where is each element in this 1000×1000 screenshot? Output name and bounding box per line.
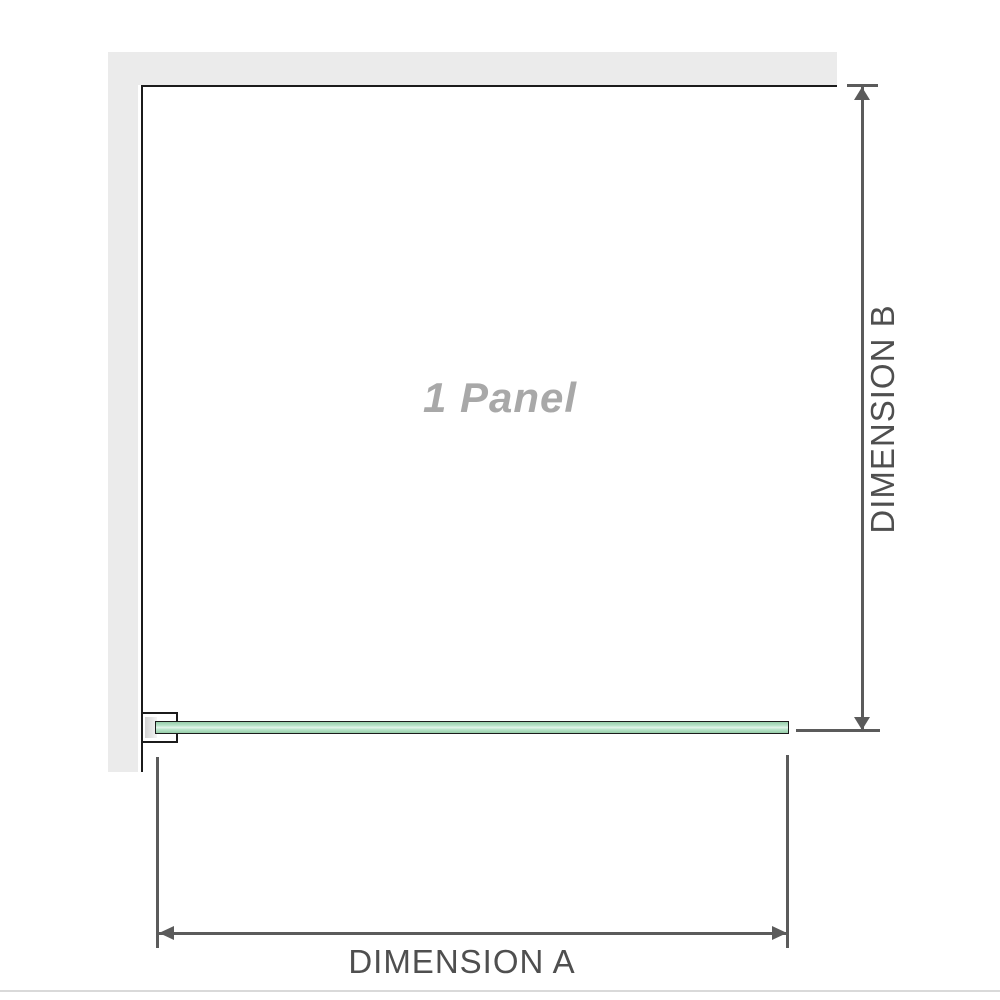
panel-outline-top (141, 85, 837, 87)
arrow-right-icon (772, 926, 787, 940)
arrow-left-icon (159, 926, 174, 940)
dimension-a-extension-right (786, 755, 789, 948)
bottom-separator (0, 990, 1000, 992)
dimension-a-line (159, 932, 788, 935)
wall-top (108, 52, 837, 85)
wall-left (108, 52, 138, 772)
dimension-b-tick-bottom (796, 729, 880, 732)
panel-dimension-diagram: 1 Panel DIMENSION B DIMENSION A (0, 0, 1000, 1000)
dimension-a-extension-left (156, 757, 159, 948)
arrow-up-icon (854, 87, 870, 100)
panel-label: 1 Panel (350, 374, 650, 422)
dimension-a-label: DIMENSION A (162, 945, 762, 979)
dimension-b-label: DIMENSION B (866, 249, 900, 589)
panel-outline-left (141, 85, 143, 772)
glass-panel (155, 721, 789, 734)
